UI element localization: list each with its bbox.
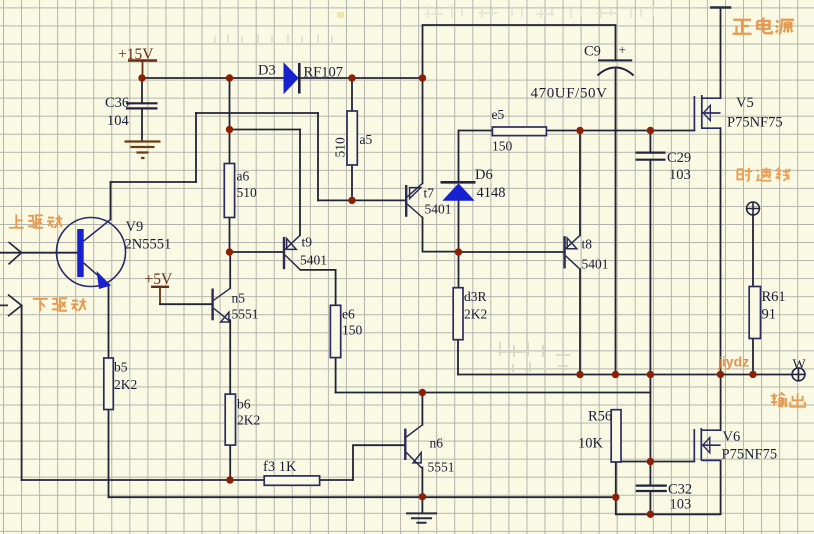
svg-text:n5: n5: [232, 291, 246, 306]
svg-text:R56: R56: [588, 409, 612, 425]
svg-text:91: 91: [762, 307, 777, 323]
svg-text:104: 104: [107, 113, 130, 129]
svg-text:+15V: +15V: [118, 46, 154, 63]
svg-text:2K2: 2K2: [114, 377, 137, 392]
svg-text:150: 150: [342, 323, 363, 338]
svg-text:jiydz: jiydz: [717, 354, 749, 370]
svg-text:b5: b5: [114, 360, 128, 375]
svg-text:t9: t9: [302, 235, 313, 250]
svg-text:5401: 5401: [300, 253, 327, 268]
svg-text:+5V: +5V: [145, 271, 173, 288]
svg-text:470UF/50V: 470UF/50V: [531, 86, 608, 102]
svg-text:C32: C32: [668, 482, 692, 498]
svg-text:2K2: 2K2: [237, 413, 260, 428]
svg-text:d3R: d3R: [464, 289, 487, 304]
svg-text:P75NF75: P75NF75: [722, 447, 778, 463]
svg-text:V9: V9: [126, 219, 144, 235]
svg-text:103: 103: [670, 497, 692, 513]
svg-text:+: +: [619, 42, 626, 57]
svg-text:150: 150: [492, 139, 513, 154]
svg-text:5401: 5401: [425, 202, 452, 217]
svg-text:103: 103: [669, 167, 691, 183]
svg-text:V6: V6: [723, 429, 741, 445]
svg-text:t8: t8: [582, 237, 593, 252]
svg-text:4148: 4148: [477, 185, 506, 201]
svg-text:2N5551: 2N5551: [125, 237, 172, 253]
svg-text:W: W: [793, 358, 807, 373]
svg-text:P75NF75: P75NF75: [727, 115, 783, 131]
svg-text:e6: e6: [342, 307, 355, 322]
svg-text:510: 510: [333, 137, 348, 158]
svg-text:b6: b6: [237, 397, 251, 412]
svg-text:a5: a5: [360, 132, 373, 147]
svg-text:5551: 5551: [428, 460, 455, 475]
svg-text:R61: R61: [762, 289, 786, 305]
svg-text:C29: C29: [667, 150, 691, 166]
svg-text:D6: D6: [475, 167, 493, 183]
svg-text:D3: D3: [258, 63, 276, 79]
svg-text:5551: 5551: [232, 307, 259, 322]
svg-text:a6: a6: [237, 169, 250, 184]
svg-text:5401: 5401: [582, 257, 609, 272]
svg-text:10K: 10K: [578, 436, 604, 452]
svg-text:510: 510: [237, 185, 258, 200]
svg-text:e5: e5: [492, 107, 505, 122]
svg-text:V5: V5: [736, 95, 754, 111]
svg-text:2K2: 2K2: [464, 307, 487, 322]
svg-text:f3 1K: f3 1K: [263, 459, 297, 475]
svg-text:n6: n6: [430, 436, 444, 451]
svg-text:t7: t7: [424, 186, 435, 201]
svg-text:C36: C36: [105, 95, 129, 111]
svg-text:C9: C9: [584, 44, 601, 60]
svg-text:RF107: RF107: [304, 65, 344, 81]
